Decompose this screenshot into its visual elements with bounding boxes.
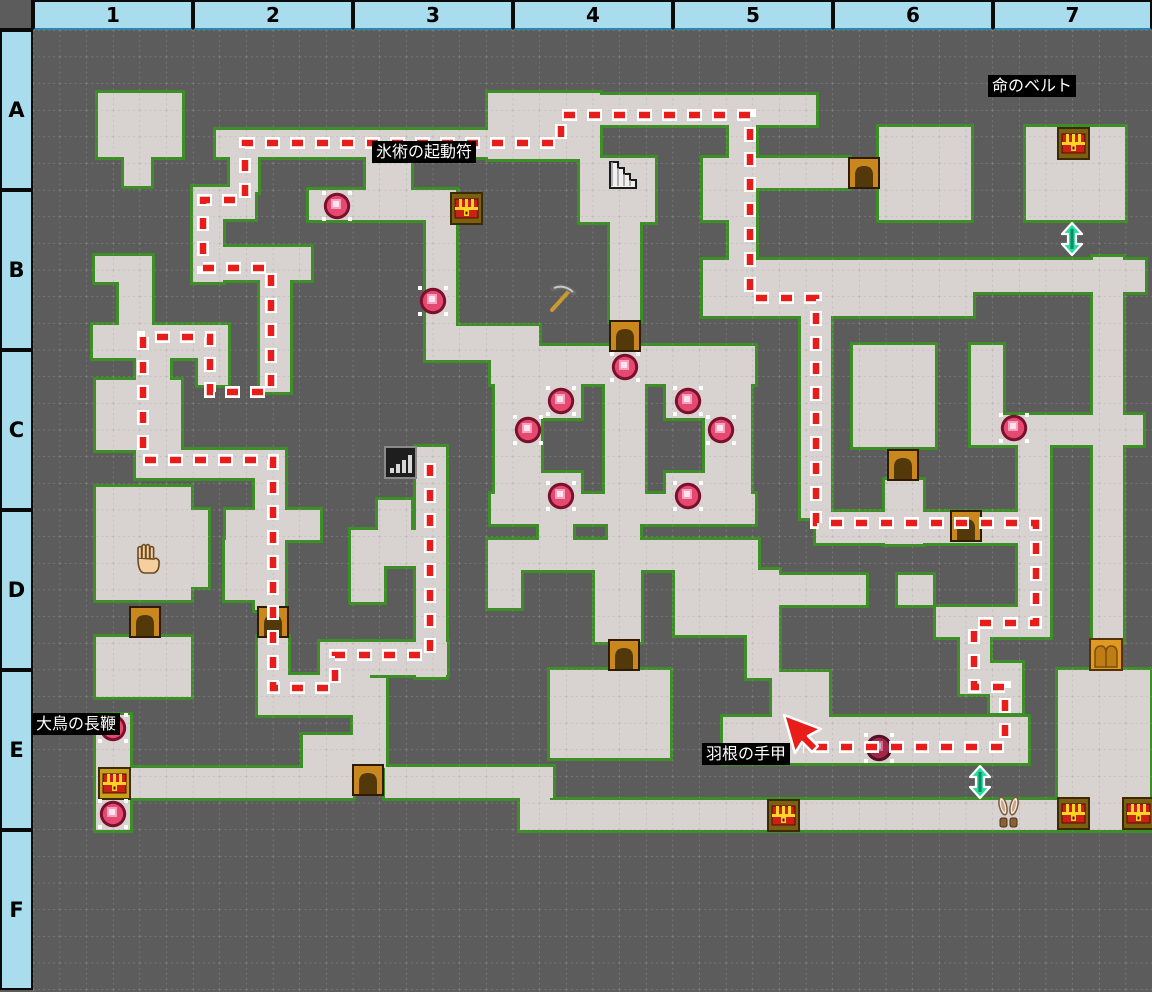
door-icon <box>353 765 383 795</box>
treasure-chest-icon <box>1058 128 1089 159</box>
door-icon <box>609 640 639 670</box>
grid-overlay <box>33 30 1152 992</box>
dungeon-map-screen: 1234567 ABCDEF 命のベルト氷術の起動符大鳥の長鞭羽根の手甲 <box>0 0 1152 992</box>
map-canvas[interactable] <box>0 0 1152 992</box>
item-label: 大鳥の長鞭 <box>32 713 120 735</box>
treasure-chest-icon <box>451 193 482 224</box>
treasure-chest-icon <box>768 800 799 831</box>
item-label: 命のベルト <box>988 75 1076 97</box>
item-label: 羽根の手甲 <box>702 743 790 765</box>
treasure-chest-icon <box>1123 798 1152 829</box>
item-label: 氷術の起動符 <box>372 141 476 163</box>
door-icon <box>610 321 640 351</box>
door-icon <box>849 158 879 188</box>
treasure-chest-icon <box>99 768 130 799</box>
treasure-chest-icon <box>1058 798 1089 829</box>
bars-icon <box>385 447 416 478</box>
door-icon <box>888 450 918 480</box>
door-icon <box>130 607 160 637</box>
door-icon <box>1090 639 1122 670</box>
